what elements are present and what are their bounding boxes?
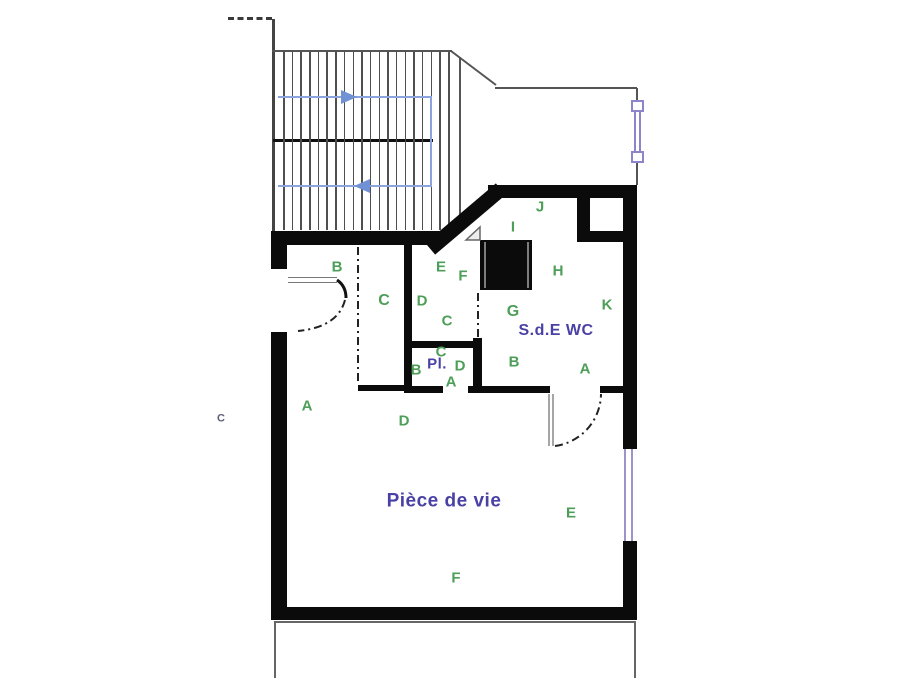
- zone-label: A: [446, 375, 457, 390]
- zone-label: A: [302, 399, 313, 414]
- zone-label: C: [217, 414, 225, 425]
- zone-label: E: [566, 506, 576, 521]
- door-swing: [555, 394, 601, 446]
- zone-label: F: [458, 269, 467, 284]
- zone-label: A: [580, 362, 591, 377]
- zone-label: D: [455, 359, 466, 374]
- door-leaf: [337, 280, 346, 298]
- zone-label: K: [602, 298, 613, 313]
- stair-diagonal-line: [451, 51, 496, 85]
- room-name-label: S.d.E WC: [518, 323, 593, 339]
- door-swing: [298, 300, 345, 331]
- zone-label: C: [442, 314, 453, 329]
- zone-label: D: [399, 414, 410, 429]
- zone-label: I: [511, 220, 515, 235]
- up-arrow-icon: [341, 90, 357, 104]
- zone-label: B: [411, 363, 422, 378]
- zone-label: G: [507, 304, 519, 320]
- triangle-marker: [466, 227, 480, 240]
- zone-label: F: [451, 571, 460, 586]
- floor-plan: BCEFDCCBDAADJIHGKBAEFPl.S.d.E WCPièce de…: [0, 0, 902, 678]
- zone-label: B: [332, 260, 343, 275]
- room-name-label: Pièce de vie: [387, 492, 502, 511]
- zone-label: B: [509, 355, 520, 370]
- zone-label: E: [436, 260, 446, 275]
- stair-direction-path: [278, 97, 431, 186]
- zone-label: D: [417, 294, 428, 309]
- wall-diagonal: [436, 194, 495, 244]
- down-arrow-icon: [354, 179, 370, 193]
- room-name-label: Pl.: [427, 357, 447, 372]
- zone-label: H: [553, 264, 564, 279]
- zone-label: J: [536, 200, 544, 215]
- zone-label: C: [378, 293, 390, 309]
